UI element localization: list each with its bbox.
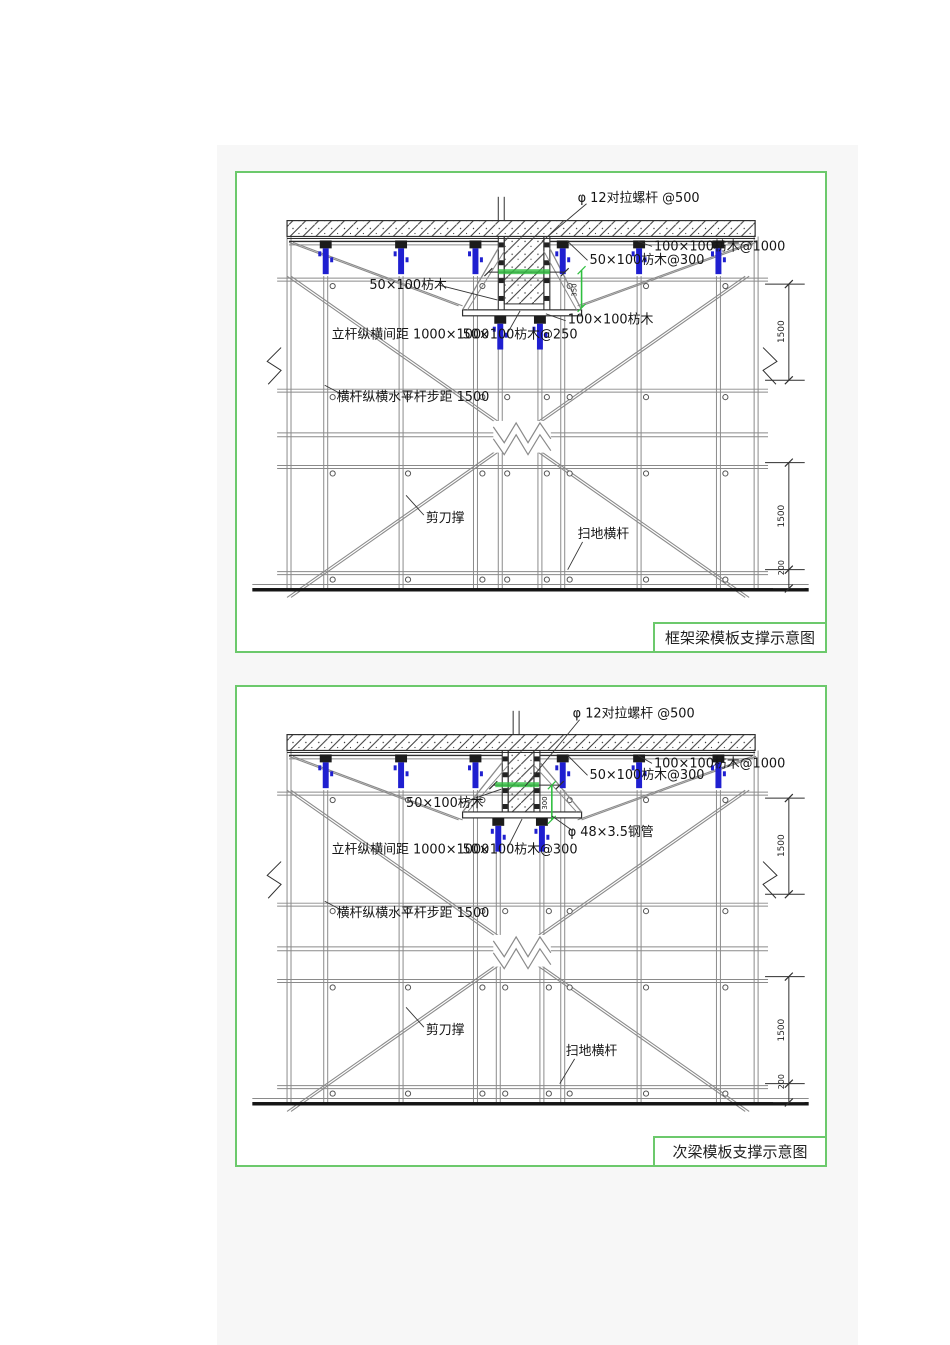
label-timber-50x100: 50×100枋木 [369, 277, 447, 293]
label-timber-50x100-at-300-bottom: 50×100枋木@300 [463, 842, 578, 858]
secondary-beam-diagram-panel: φ 12对拉螺杆 @500 100×100枋木@1000 50×100枋木@30… [235, 685, 827, 1167]
dim-bottom-200: 200 [777, 560, 786, 575]
label-ledger-spacing: 横杆纵横水平杆步距 1500 [337, 906, 490, 921]
diagram-title-box: 次梁模板支撑示意图 [653, 1136, 827, 1167]
diagram-title: 框架梁模板支撑示意图 [665, 627, 815, 648]
label-steel-pipe: φ 48×3.5钢管 [568, 825, 654, 840]
label-ledger-spacing: 横杆纵横水平杆步距 1500 [337, 390, 490, 405]
document-content-column: φ 12对拉螺杆 @500 100×100枋木@1000 50×100枋木@30… [217, 145, 858, 1345]
label-timber-50x100-at-300: 50×100枋木@300 [590, 252, 705, 268]
dim-beam-height: 300 [541, 796, 549, 809]
frame-beam-diagram-panel: φ 12对拉螺杆 @500 100×100枋木@1000 50×100枋木@30… [235, 171, 827, 653]
label-sweep-rod: 扫地横杆 [578, 527, 630, 542]
dim-beam-height: 350 [571, 283, 579, 296]
label-timber-100x100-at-1000: 100×100枋木@1000 [654, 238, 785, 254]
dim-bottom-200: 200 [777, 1074, 786, 1089]
secondary-beam-formwork-drawing: φ 12对拉螺杆 @500 100×100枋木@1000 50×100枋木@30… [237, 687, 825, 1165]
dim-upper-1500: 1500 [777, 320, 787, 343]
label-tie-rod: φ 12对拉螺杆 @500 [578, 191, 700, 206]
label-timber-50x100-at-300: 50×100枋木@300 [590, 767, 705, 783]
label-scissor-brace: 剪刀撑 [426, 1022, 465, 1038]
diagram-title-box: 框架梁模板支撑示意图 [653, 622, 827, 653]
label-timber-100x100: 100×100枋木 [568, 312, 654, 328]
label-timber-50x100-at-250: 50×100枋木@250 [463, 327, 578, 343]
diagram-title: 次梁模板支撑示意图 [672, 1141, 807, 1162]
dim-lower-1500: 1500 [777, 504, 787, 527]
label-timber-50x100: 50×100枋木 [406, 795, 484, 811]
label-tie-rod: φ 12对拉螺杆 @500 [573, 707, 695, 722]
label-scissor-brace: 剪刀撑 [426, 510, 465, 526]
dim-lower-1500: 1500 [777, 1018, 787, 1041]
label-sweep-rod: 扫地横杆 [566, 1044, 618, 1059]
dim-upper-1500: 1500 [777, 834, 787, 857]
frame-beam-formwork-drawing: φ 12对拉螺杆 @500 100×100枋木@1000 50×100枋木@30… [237, 173, 825, 651]
